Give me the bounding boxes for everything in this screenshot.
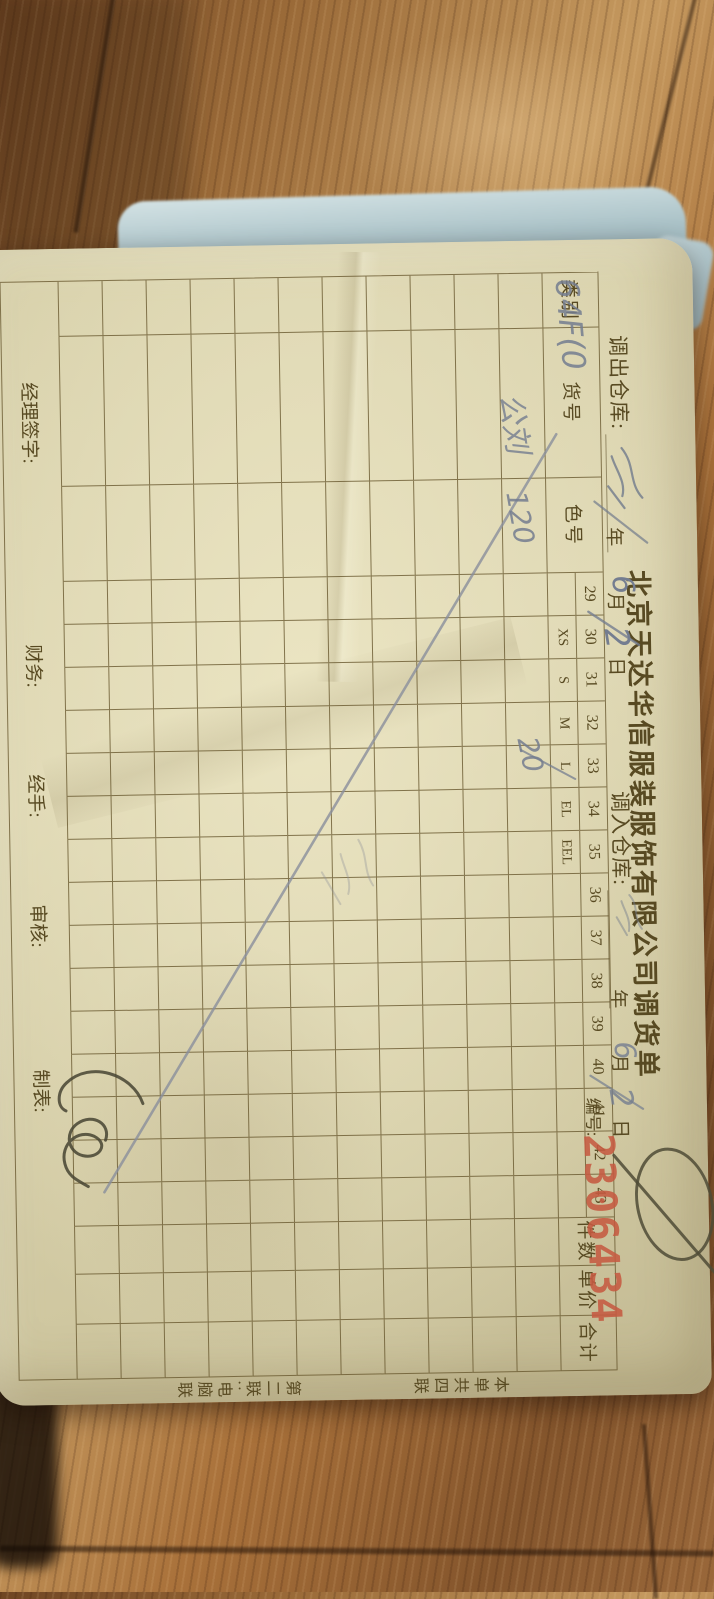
out-warehouse-slash (594, 501, 647, 544)
circle-slash (614, 1153, 714, 1285)
wood-plank-seam (0, 1546, 714, 1557)
photo-of-transfer-form: { "scene": { "description": "Photo of a … (0, 0, 714, 1592)
faint-scribble (321, 840, 373, 905)
out-warehouse-handwriting (608, 448, 643, 509)
signature-stroke-1 (59, 1071, 143, 1111)
circle-mark (626, 1141, 714, 1267)
paper-form: 调出仓库: 北京天达华信服装服饰有限公司调货单 调入仓库: 年 月 日 年 月 … (0, 238, 712, 1406)
handwriting-item-code-2: 公刘 (491, 390, 543, 456)
handwriting-strokes (0, 243, 668, 1404)
in-warehouse-handwriting (616, 895, 642, 935)
signature-stroke-2 (63, 1119, 107, 1187)
wood-dark-corner (0, 1378, 58, 1568)
wood-plank-seam (642, 1424, 658, 1599)
handwriting-quantity-size-l: 20 (511, 734, 551, 776)
cancel-line (91, 434, 569, 1192)
handwriting-item-code: 64F(0 (547, 276, 593, 371)
handwriting-out-month: 6 (604, 573, 641, 596)
transfer-form: 调出仓库: 北京天达华信服装服饰有限公司调货单 调入仓库: 年 月 日 年 月 … (0, 243, 668, 1404)
handwriting-in-month: 6 (607, 1039, 643, 1061)
